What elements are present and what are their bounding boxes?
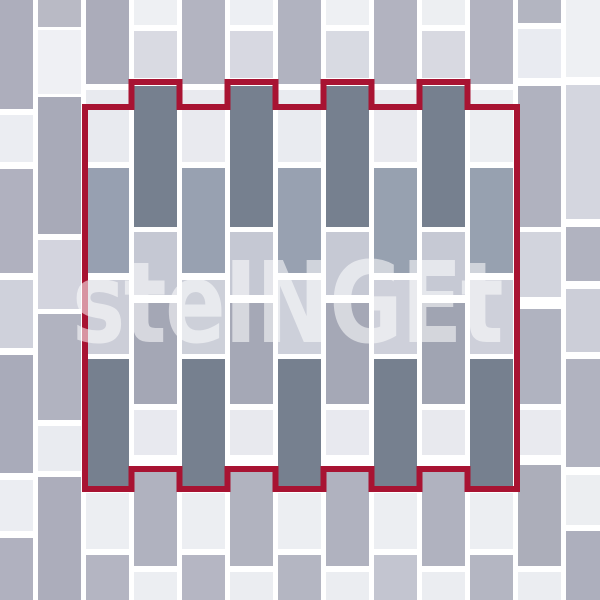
- paving-tile: [230, 470, 273, 566]
- paving-tile: [38, 426, 81, 471]
- paving-tile: [470, 493, 513, 549]
- paving-tile: [326, 303, 369, 404]
- paving-tile: [326, 86, 369, 227]
- paving-tile: [86, 0, 129, 84]
- paving-tile: [422, 470, 465, 566]
- paving-tile: [38, 314, 81, 420]
- paving-tile: [182, 493, 225, 549]
- paving-tile: [182, 168, 225, 273]
- paving-tile: [518, 232, 561, 297]
- paving-tile: [422, 232, 465, 295]
- paving-tile: [470, 280, 513, 354]
- paving-tile: [518, 465, 561, 566]
- paving-tile: [470, 359, 513, 486]
- paving-tile: [374, 90, 417, 162]
- paving-tile: [134, 86, 177, 227]
- paving-tile: [86, 359, 129, 486]
- paving-tile: [0, 115, 33, 162]
- paving-tile: [278, 168, 321, 273]
- paving-tile: [470, 555, 513, 600]
- paving-tile: [566, 475, 600, 525]
- paving-tile: [0, 538, 33, 600]
- paving-tile: [566, 227, 600, 281]
- paving-tile: [374, 359, 417, 486]
- paving-tile: [278, 493, 321, 549]
- paving-tile: [518, 0, 561, 23]
- paving-tile: [278, 90, 321, 162]
- paving-tile: [422, 86, 465, 227]
- paving-tile: [0, 480, 33, 531]
- paving-tile: [518, 86, 561, 227]
- paving-tile: [86, 280, 129, 354]
- paving-tile: [374, 280, 417, 354]
- paving-tile: [182, 555, 225, 600]
- paving-tile: [134, 303, 177, 404]
- paving-tile: [422, 572, 465, 600]
- paving-tile: [374, 0, 417, 84]
- paving-tile: [134, 0, 177, 25]
- paving-tile: [0, 169, 33, 273]
- paving-tile: [230, 232, 273, 295]
- paving-tile: [422, 0, 465, 25]
- paving-tile: [230, 86, 273, 227]
- paving-tile: [0, 355, 33, 473]
- paving-tile: [38, 97, 81, 234]
- paving-tile: [134, 232, 177, 295]
- paving-tile: [0, 280, 33, 348]
- paving-tile: [278, 0, 321, 84]
- paving-tile: [230, 410, 273, 455]
- paving-tile: [422, 410, 465, 455]
- paving-tile: [278, 555, 321, 600]
- paving-tile: [470, 168, 513, 273]
- paving-tile: [422, 303, 465, 404]
- paving-tile: [134, 31, 177, 78]
- paving-tile: [326, 572, 369, 600]
- paving-tile: [230, 303, 273, 404]
- paving-tile: [422, 31, 465, 78]
- paving-tile: [230, 572, 273, 600]
- paving-tile: [278, 359, 321, 486]
- paving-tile: [182, 90, 225, 162]
- paving-tile: [38, 0, 81, 27]
- paving-tile: [518, 572, 561, 600]
- paving-tile: [134, 410, 177, 455]
- paving-tile: [518, 29, 561, 78]
- paving-tile: [566, 0, 600, 77]
- paving-tile: [470, 0, 513, 84]
- paving-tile: [86, 90, 129, 162]
- paving-tile: [182, 359, 225, 486]
- paving-tile: [470, 90, 513, 162]
- paving-tile: [134, 572, 177, 600]
- paving-tile: [326, 232, 369, 295]
- paving-tile: [230, 0, 273, 25]
- paving-tile: [230, 31, 273, 78]
- paving-tile: [374, 555, 417, 600]
- paving-tile: [278, 280, 321, 354]
- paving-tile: [0, 0, 33, 109]
- paving-tile: [182, 0, 225, 84]
- paving-tile: [134, 470, 177, 566]
- paving-tile: [566, 531, 600, 600]
- paving-tile: [86, 493, 129, 549]
- paving-pattern-canvas: steINGEt: [0, 0, 600, 600]
- paving-tile: [518, 309, 561, 404]
- paving-tile: [374, 168, 417, 273]
- paving-tile: [38, 30, 81, 94]
- paving-tile: [326, 410, 369, 455]
- paving-tile: [326, 0, 369, 25]
- paving-tile: [182, 280, 225, 354]
- paving-tile: [86, 168, 129, 273]
- paving-tile: [38, 477, 81, 600]
- paving-tile: [326, 31, 369, 78]
- paving-tile: [518, 410, 561, 455]
- paving-tile: [566, 289, 600, 352]
- paving-tile: [326, 470, 369, 566]
- paving-tile: [374, 493, 417, 549]
- paving-tile: [38, 240, 81, 309]
- paving-tile: [86, 555, 129, 600]
- paving-tile: [566, 85, 600, 219]
- paving-tile: [566, 359, 600, 467]
